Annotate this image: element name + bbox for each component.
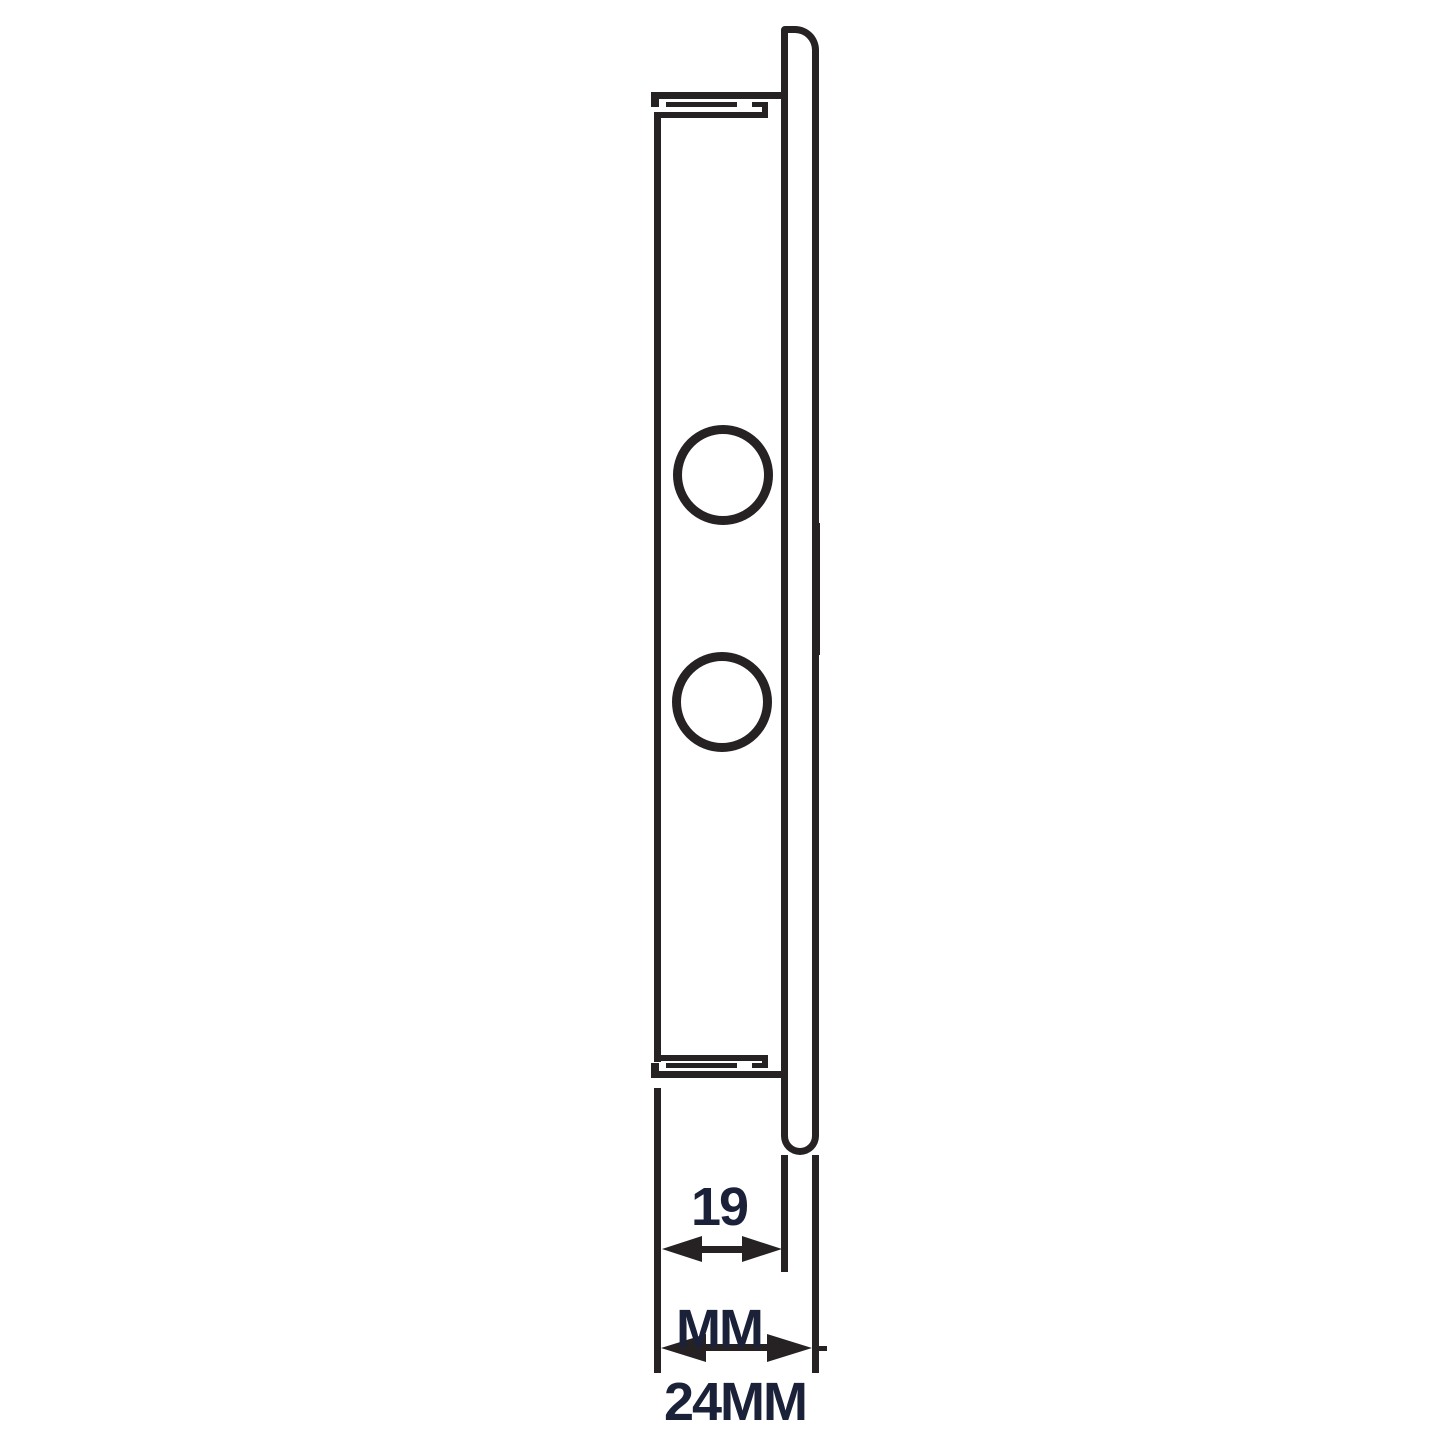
dim-19-value: 19 xyxy=(691,1177,747,1237)
dimension-label-24mm: 24MM xyxy=(635,1372,835,1433)
dim-19-unit: MM xyxy=(676,1299,762,1359)
bottom-clip-outer-bar xyxy=(651,1071,788,1078)
top-clip-outer-bar xyxy=(651,92,788,99)
upper-hole-circle xyxy=(673,425,773,525)
face-plate-edge-thick-segment xyxy=(812,523,820,655)
bottom-clip-inner-line xyxy=(666,1063,737,1068)
duct-body-top-edge xyxy=(654,112,768,118)
technical-drawing-canvas: 19 MM 24MM xyxy=(0,0,1445,1445)
duct-body-bottom-edge xyxy=(654,1055,768,1061)
top-clip-step-vert xyxy=(762,102,768,117)
dimension-label-19mm: 19 MM xyxy=(619,1116,819,1360)
lower-hole-circle xyxy=(672,652,772,752)
top-clip-left-cap xyxy=(651,92,659,107)
duct-body-left-edge xyxy=(654,112,661,1062)
bottom-clip-step-vert xyxy=(762,1055,768,1068)
extension-tick-right xyxy=(819,1346,827,1351)
top-clip-inner-line xyxy=(666,102,737,107)
bottom-clip-left-cap xyxy=(651,1063,659,1078)
